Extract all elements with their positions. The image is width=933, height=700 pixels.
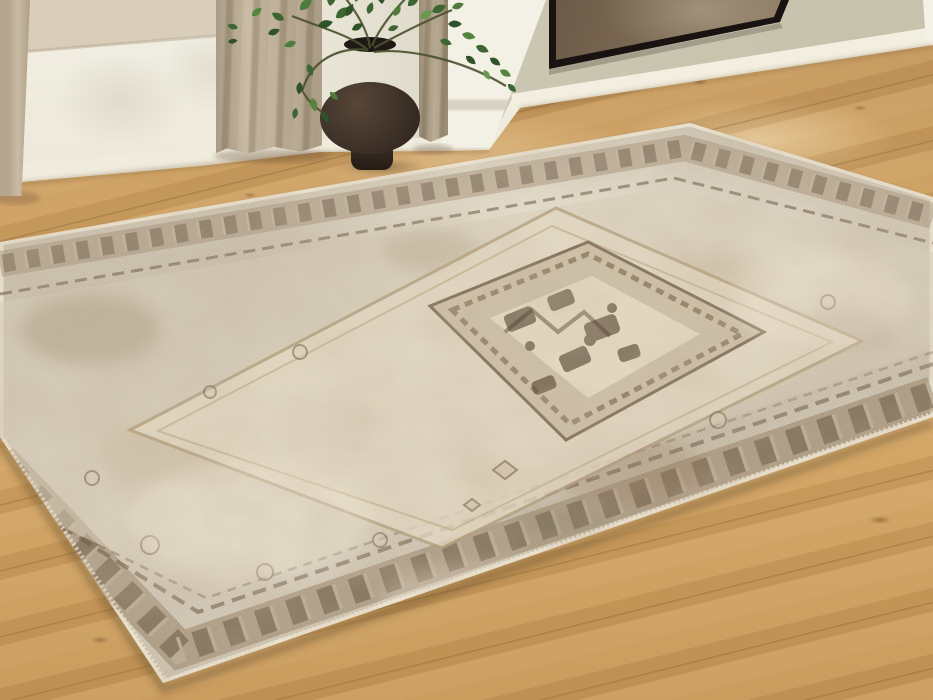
- rug-pattern-layer: [0, 0, 933, 700]
- rug-distress-blotch: [0, 100, 933, 700]
- room-photo: [0, 0, 933, 700]
